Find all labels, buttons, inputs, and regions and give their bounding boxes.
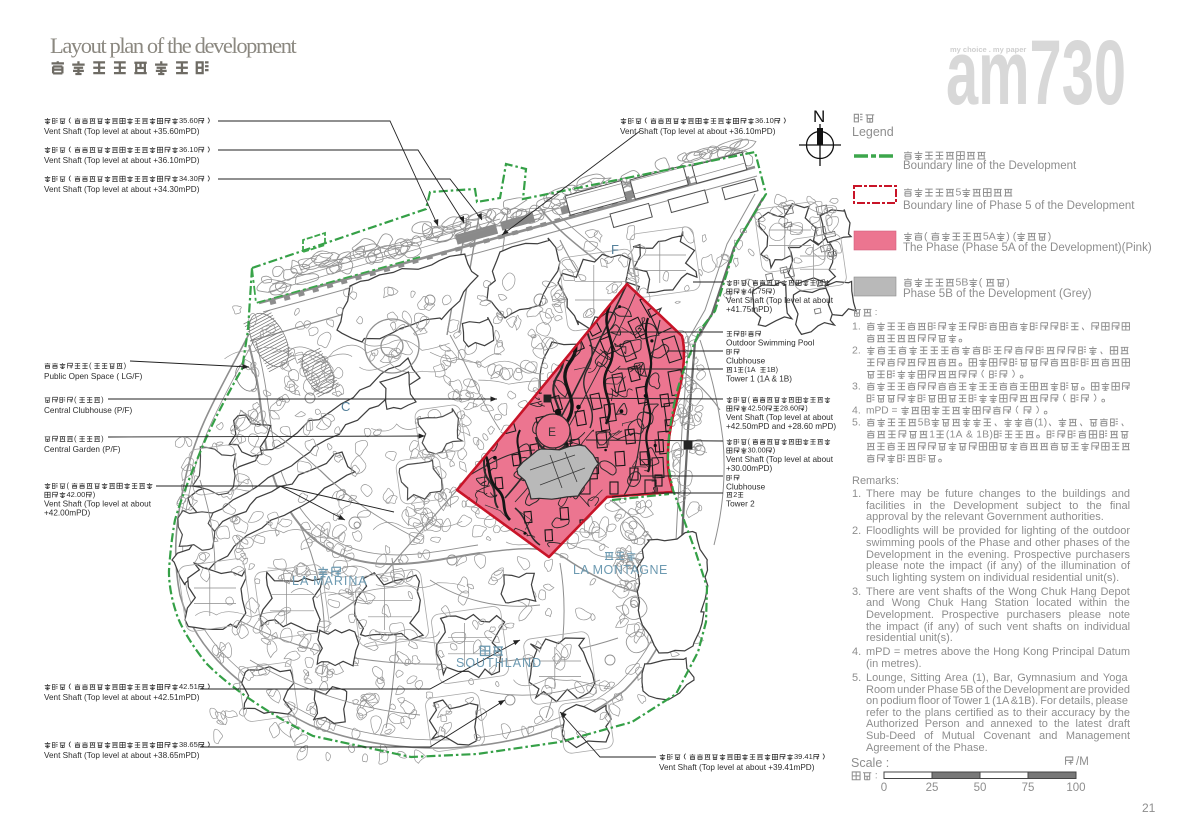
svg-text:Vent Shaft (Top level at about: Vent Shaft (Top level at about +36.10mPD… — [620, 127, 776, 136]
svg-text:Vent Shaft (Top level at about: Vent Shaft (Top level at about — [726, 296, 834, 305]
svg-text:E: E — [548, 425, 556, 439]
svg-text:): ) — [101, 395, 104, 404]
svg-text:Public Open Space ( LG/F): Public Open Space ( LG/F) — [44, 372, 143, 381]
svg-text:SOUTHLAND: SOUTHLAND — [456, 656, 542, 670]
svg-text:): ) — [1044, 417, 1047, 428]
svg-text:30.00: 30.00 — [748, 446, 766, 455]
svg-text:Clubhouse: Clubhouse — [726, 482, 766, 491]
svg-text:Central Garden (P/F): Central Garden (P/F) — [44, 445, 121, 454]
svg-text:5A: 5A — [983, 231, 996, 243]
svg-text:(: ( — [979, 277, 983, 289]
svg-text:Vent Shaft (Top level at about: Vent Shaft (Top level at about — [726, 455, 834, 464]
svg-text:LA MARINA: LA MARINA — [292, 574, 368, 588]
svg-text:3.: 3. — [852, 380, 861, 392]
svg-text:Vent Shaft (Top level at about: Vent Shaft (Top level at about +39.41mPD… — [659, 763, 815, 772]
svg-text:5.: 5. — [852, 416, 861, 428]
svg-text:(1A: (1A — [744, 365, 755, 374]
svg-text:5: 5 — [956, 187, 962, 199]
svg-text:mPD =: mPD = — [866, 405, 897, 416]
svg-text:(: ( — [924, 231, 928, 243]
svg-text:Scale :: Scale : — [851, 756, 889, 770]
svg-text:+41.75mPD): +41.75mPD) — [726, 305, 772, 314]
svg-text:/M: /M — [1076, 756, 1089, 768]
svg-text:1: 1 — [733, 365, 737, 374]
svg-text:Vent Shaft (Top level at about: Vent Shaft (Top level at about +36.10mPD… — [44, 156, 200, 165]
svg-text:F: F — [611, 242, 619, 257]
svg-text:) (: ) ( — [1006, 231, 1016, 243]
svg-text:75: 75 — [1022, 782, 1035, 794]
svg-text:): ) — [990, 429, 993, 440]
svg-text:): ) — [93, 490, 96, 499]
svg-text:Outdoor Swimming Pool: Outdoor Swimming Pool — [726, 338, 814, 347]
svg-text:Vent Shaft (Top level at about: Vent Shaft (Top level at about — [726, 413, 834, 422]
svg-text:38.65: 38.65 — [179, 740, 198, 749]
svg-text:1: 1 — [929, 429, 935, 440]
svg-text:2: 2 — [733, 490, 737, 499]
svg-text:5B: 5B — [956, 277, 969, 289]
svg-text:50: 50 — [974, 782, 987, 794]
svg-text:N: N — [813, 107, 825, 126]
svg-text:B: B — [982, 429, 989, 440]
svg-text:42.50: 42.50 — [748, 404, 766, 413]
svg-text:Tower 2: Tower 2 — [726, 499, 755, 508]
svg-text:(: ( — [89, 361, 92, 370]
svg-text:(: ( — [74, 395, 77, 404]
svg-text:42.00: 42.00 — [67, 490, 86, 499]
svg-text:The Phase (Phase 5A of the Dev: The Phase (Phase 5A of the Development)(… — [903, 242, 1152, 254]
svg-text:35.60: 35.60 — [179, 116, 198, 125]
svg-text:Vent Shaft (Top level at about: Vent Shaft (Top level at about +42.51mPD… — [44, 693, 200, 702]
svg-text:Vent Shaft (Top level at about: Vent Shaft (Top level at about +38.65mPD… — [44, 751, 200, 760]
svg-text:&: & — [966, 429, 973, 440]
svg-text:Phase 5B of the Development (G: Phase 5B of the Development (Grey) — [903, 288, 1092, 300]
svg-text:41.75: 41.75 — [748, 287, 766, 296]
svg-text:42.51: 42.51 — [179, 682, 198, 691]
svg-text:21: 21 — [1142, 801, 1156, 815]
svg-text:): ) — [1006, 277, 1010, 289]
svg-text:LA MONTAGNE: LA MONTAGNE — [573, 563, 668, 577]
svg-text:(: ( — [748, 437, 751, 446]
svg-text:(: ( — [748, 395, 751, 404]
svg-text:+30.00mPD): +30.00mPD) — [726, 464, 772, 473]
svg-text:A: A — [956, 429, 963, 440]
svg-text:36.10: 36.10 — [179, 145, 198, 154]
svg-text:34.30: 34.30 — [179, 174, 198, 183]
svg-text:28.60: 28.60 — [780, 404, 798, 413]
svg-text:): ) — [773, 446, 775, 455]
svg-text:4.: 4. — [852, 404, 861, 416]
svg-text:(: ( — [67, 481, 70, 490]
svg-text:+42.50mPD and +28.60 mPD): +42.50mPD and +28.60 mPD) — [726, 422, 836, 431]
svg-text:36.10: 36.10 — [755, 116, 774, 125]
svg-text:100: 100 — [1066, 782, 1085, 794]
svg-text:Legend: Legend — [852, 125, 894, 139]
svg-text:(: ( — [74, 434, 77, 443]
svg-text:Central Clubhouse (P/F): Central Clubhouse (P/F) — [44, 406, 133, 415]
svg-text:Boundary line of the Developme: Boundary line of the Development — [903, 160, 1077, 172]
svg-text:39.41: 39.41 — [794, 752, 813, 761]
svg-text:1.: 1. — [852, 320, 861, 332]
svg-text:Layout plan of the development: Layout plan of the development — [50, 33, 298, 58]
svg-text:Vent Shaft (Top level at about: Vent Shaft (Top level at about +34.30mPD… — [44, 185, 200, 194]
svg-text:): ) — [101, 434, 104, 443]
svg-text:am730: am730 — [946, 22, 1126, 124]
svg-text:25: 25 — [926, 782, 939, 794]
svg-text:Tower 1 (1A & 1B): Tower 1 (1A & 1B) — [726, 374, 792, 383]
svg-text:2.: 2. — [852, 344, 861, 356]
svg-text:Boundary line of Phase 5 of th: Boundary line of Phase 5 of the Developm… — [903, 200, 1135, 212]
svg-text:): ) — [124, 361, 127, 370]
svg-text:B: B — [924, 417, 931, 428]
svg-text:): ) — [1048, 231, 1052, 243]
svg-text:Vent Shaft (Top level at about: Vent Shaft (Top level at about +35.60mPD… — [44, 127, 200, 136]
svg-text:+42.00mPD): +42.00mPD) — [44, 509, 90, 518]
svg-text:C: C — [341, 399, 350, 414]
svg-text:): ) — [805, 404, 807, 413]
svg-text:Vent Shaft (Top level at about: Vent Shaft (Top level at about — [44, 500, 152, 509]
svg-text:): ) — [773, 287, 775, 296]
svg-text:1B): 1B) — [767, 365, 778, 374]
svg-text:0: 0 — [881, 782, 887, 794]
